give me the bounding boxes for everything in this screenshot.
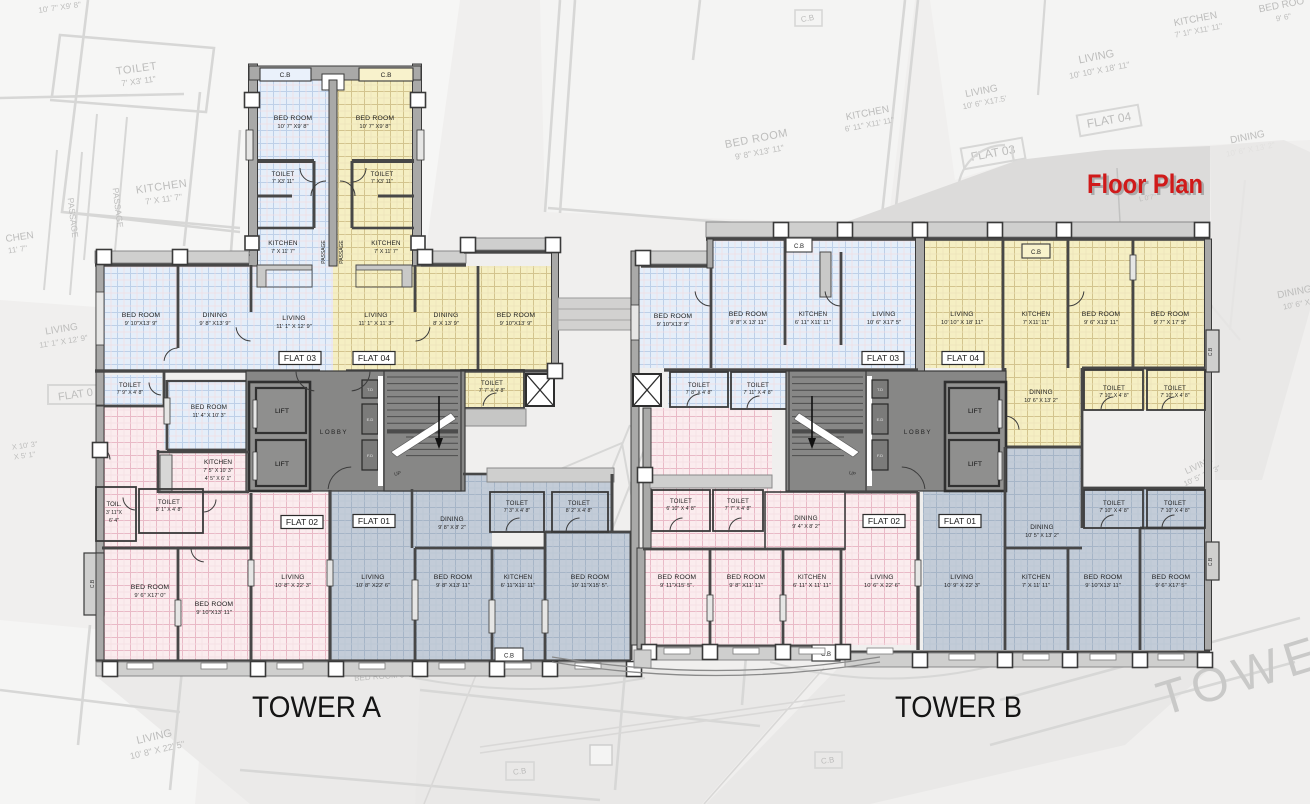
svg-text:BED ROOM: BED ROOM (1152, 574, 1191, 581)
svg-text:TOILET: TOILET (481, 381, 503, 387)
svg-text:F.D: F.D (367, 453, 373, 458)
svg-text:KITCHEN: KITCHEN (504, 574, 533, 581)
svg-text:7' 11" X 4' 8": 7' 11" X 4' 8" (744, 390, 773, 396)
svg-text:7' 7" X 4' 8": 7' 7" X 4' 8" (479, 388, 506, 394)
svg-text:7' 9" X 4' 8": 7' 9" X 4' 8" (117, 390, 144, 396)
svg-text:LOBBY: LOBBY (320, 429, 348, 436)
svg-text:LIVING: LIVING (872, 311, 896, 318)
svg-text:9' 10"X13' 9": 9' 10"X13' 9" (657, 322, 690, 328)
svg-text:7' X3' 11": 7' X3' 11" (272, 179, 294, 185)
svg-text:LIVING: LIVING (870, 574, 894, 581)
svg-text:C.B: C.B (512, 766, 526, 777)
svg-text:DINING: DINING (1030, 524, 1054, 531)
svg-text:9' 10"X13' 9": 9' 10"X13' 9" (125, 321, 158, 327)
svg-text:BED ROOM: BED ROOM (131, 584, 170, 591)
svg-text:6' 4": 6' 4" (109, 518, 119, 524)
svg-text:FLAT 04: FLAT 04 (947, 353, 979, 363)
svg-text:PASSAGE: PASSAGE (339, 240, 345, 264)
svg-text:7' 3" X 4' 8": 7' 3" X 4' 8" (504, 508, 531, 514)
svg-text:10' 9" X 22' 3": 10' 9" X 22' 3" (944, 583, 980, 589)
svg-text:TOILET: TOILET (119, 383, 141, 389)
svg-text:LIVING: LIVING (281, 574, 305, 581)
svg-text:T.D: T.D (877, 387, 883, 392)
svg-text:9' 10"X13' 11": 9' 10"X13' 11" (196, 610, 232, 616)
svg-text:C.B: C.B (1208, 557, 1214, 566)
svg-text:C.B: C.B (820, 755, 834, 766)
svg-text:BED ROOM: BED ROOM (1084, 574, 1123, 581)
svg-text:7' 10" X 4' 8": 7' 10" X 4' 8" (1160, 393, 1189, 399)
svg-text:10' 5" X 13' 2": 10' 5" X 13' 2" (1025, 533, 1059, 539)
svg-text:BED ROOM: BED ROOM (497, 312, 536, 319)
svg-text:KITCHEN: KITCHEN (798, 574, 827, 581)
svg-text:10' 10" X 18' 11": 10' 10" X 18' 11" (941, 320, 983, 326)
svg-text:7' X 11' 7": 7' X 11' 7" (271, 249, 295, 255)
svg-text:6' 11" X11' 11": 6' 11" X11' 11" (795, 320, 831, 326)
svg-text:TOIL.: TOIL. (107, 502, 122, 508)
svg-text:BED ROOM: BED ROOM (1151, 311, 1190, 318)
svg-text:11' 1" X 12' 9": 11' 1" X 12' 9" (276, 324, 312, 330)
svg-text:8' 1" X 4' 8": 8' 1" X 4' 8" (156, 507, 183, 513)
svg-text:BED ROOM: BED ROOM (434, 574, 473, 581)
svg-text:3' 11"X: 3' 11"X (106, 510, 123, 516)
svg-text:LIFT: LIFT (275, 461, 289, 468)
svg-text:C.B: C.B (504, 654, 514, 660)
svg-text:8' X 13' 9": 8' X 13' 9" (433, 321, 459, 327)
svg-text:TOILET: TOILET (688, 383, 710, 389)
svg-text:9' 11"X15' 5".: 9' 11"X15' 5". (660, 583, 694, 589)
svg-text:E.D: E.D (877, 417, 884, 422)
svg-text:9' 6" X13' 11": 9' 6" X13' 11" (1084, 320, 1118, 326)
svg-text:11' 1" X 11' 3": 11' 1" X 11' 3" (358, 321, 393, 327)
svg-text:KITCHEN: KITCHEN (799, 311, 828, 318)
svg-text:10' 11"X15' 5".: 10' 11"X15' 5". (571, 583, 609, 589)
svg-text:TOILET: TOILET (1164, 501, 1186, 507)
svg-text:11' 4" X 10' 3": 11' 4" X 10' 3" (192, 413, 225, 419)
svg-text:9' 6" X17' 0": 9' 6" X17' 0" (134, 593, 165, 599)
svg-text:C.B: C.B (1031, 250, 1041, 256)
svg-text:9' 10"X13' 9": 9' 10"X13' 9" (500, 321, 533, 327)
svg-text:9' 8" X 13' 11": 9' 8" X 13' 11" (730, 320, 766, 326)
svg-text:BED ROOM: BED ROOM (727, 574, 766, 581)
svg-text:7' 10" X 4' 8": 7' 10" X 4' 8" (1160, 508, 1189, 514)
svg-text:10' 6" X17' 5": 10' 6" X17' 5" (867, 320, 901, 326)
svg-text:BED ROOM: BED ROOM (274, 115, 313, 122)
svg-text:LIFT: LIFT (275, 408, 289, 415)
svg-text:10' 6" X 22' 6": 10' 6" X 22' 6" (864, 583, 900, 589)
svg-text:FLAT 03: FLAT 03 (867, 353, 899, 363)
svg-text:LIVING: LIVING (282, 315, 306, 322)
svg-text:PASSAGE: PASSAGE (321, 240, 327, 264)
svg-text:6' 10" X 4' 8": 6' 10" X 4' 8" (666, 506, 695, 512)
svg-text:DINING: DINING (203, 312, 228, 319)
svg-text:LIFT: LIFT (968, 408, 982, 415)
svg-text:6' 11" X 11' 11": 6' 11" X 11' 11" (793, 583, 831, 589)
svg-text:LIVING: LIVING (364, 312, 388, 319)
svg-text:BED ROOM: BED ROOM (658, 574, 697, 581)
svg-text:TOWER A: TOWER A (252, 691, 381, 724)
svg-text:KITCHEN: KITCHEN (1022, 574, 1051, 581)
svg-text:TOILET: TOILET (670, 499, 692, 505)
svg-text:TOILET: TOILET (568, 501, 590, 507)
svg-text:BED ROOM: BED ROOM (571, 574, 610, 581)
svg-text:TOILET: TOILET (158, 500, 180, 506)
svg-text:DINING: DINING (1029, 389, 1053, 396)
svg-text:FLAT 01: FLAT 01 (944, 516, 976, 526)
svg-text:9' 8" X13' 9": 9' 8" X13' 9" (199, 321, 230, 327)
svg-text:10' 7" X9' 8": 10' 7" X9' 8" (277, 124, 308, 130)
svg-text:7' X11' 11": 7' X11' 11" (1023, 320, 1050, 326)
svg-text:LIFT: LIFT (968, 461, 982, 468)
svg-text:TOILET: TOILET (727, 499, 749, 505)
svg-text:KITCHEN: KITCHEN (268, 240, 298, 247)
svg-text:8' 2" X 4' 8": 8' 2" X 4' 8" (566, 508, 593, 514)
svg-text:TOILET: TOILET (371, 171, 394, 178)
svg-text:6' 11"X11' 11": 6' 11"X11' 11" (501, 583, 536, 589)
svg-text:FLAT 02: FLAT 02 (868, 516, 900, 526)
svg-text:9' 6" X17' 5": 9' 6" X17' 5" (1155, 583, 1186, 589)
svg-text:BED ROOM: BED ROOM (195, 601, 234, 608)
svg-text:BED ROOM: BED ROOM (191, 404, 227, 411)
svg-text:C.B: C.B (1208, 347, 1214, 356)
svg-text:9' 8" X11' 11": 9' 8" X11' 11" (729, 583, 763, 589)
svg-text:9' 10"X13' 11": 9' 10"X13' 11" (1085, 583, 1121, 589)
svg-text:9' 4" X 8' 2": 9' 4" X 8' 2" (792, 524, 820, 530)
svg-text:7' 10" X 4' 8": 7' 10" X 4' 8" (1099, 508, 1128, 514)
svg-text:7' X3' 11": 7' X3' 11" (371, 179, 393, 185)
svg-text:DINING: DINING (794, 515, 818, 522)
svg-text:7' 10" X 4' 8": 7' 10" X 4' 8" (1099, 393, 1128, 399)
svg-text:LIVING: LIVING (950, 311, 974, 318)
svg-text:T.D: T.D (367, 387, 373, 392)
svg-text:4' 5" X 6' 1": 4' 5" X 6' 1" (205, 476, 232, 482)
svg-text:7' 8" X 4' 8": 7' 8" X 4' 8" (686, 390, 713, 396)
svg-text:7' 7" X 4' 8": 7' 7" X 4' 8" (725, 506, 752, 512)
svg-text:10' 8" X 22' 3": 10' 8" X 22' 3" (275, 583, 311, 589)
svg-text:9' 8" X13' 11": 9' 8" X13' 11" (436, 583, 470, 589)
svg-text:9' 8" X 8' 2": 9' 8" X 8' 2" (438, 525, 466, 531)
svg-text:7' X 11' 7": 7' X 11' 7" (374, 249, 398, 255)
svg-text:TOILET: TOILET (1103, 501, 1125, 507)
svg-text:TOILET: TOILET (747, 383, 769, 389)
svg-text:F.D: F.D (877, 453, 883, 458)
svg-text:FLAT 03: FLAT 03 (284, 353, 316, 363)
svg-text:10' 8" X22' 6": 10' 8" X22' 6" (356, 583, 390, 589)
svg-text:BED ROOM: BED ROOM (1082, 311, 1121, 318)
svg-text:10' 7" X9' 8": 10' 7" X9' 8" (359, 124, 390, 130)
svg-text:E.D: E.D (367, 417, 374, 422)
svg-text:FLAT 01: FLAT 01 (358, 516, 390, 526)
svg-text:C.B: C.B (90, 579, 96, 588)
svg-text:DINING: DINING (440, 516, 464, 523)
svg-text:BED ROOM: BED ROOM (356, 115, 395, 122)
svg-text:TOILET: TOILET (1164, 386, 1186, 392)
svg-text:10' 6" X 13' 2": 10' 6" X 13' 2" (1024, 398, 1058, 404)
svg-text:7' 5" X 10' 3": 7' 5" X 10' 3" (203, 468, 232, 474)
svg-text:Floor Plan: Floor Plan (1087, 169, 1203, 199)
svg-text:7' X 11' 11": 7' X 11' 11" (1022, 583, 1050, 589)
svg-text:C.B: C.B (280, 72, 291, 79)
svg-text:KITCHEN: KITCHEN (1022, 311, 1051, 318)
svg-text:FLAT 04: FLAT 04 (358, 353, 390, 363)
svg-text:FLAT 02: FLAT 02 (286, 517, 318, 527)
svg-text:TOILET: TOILET (506, 501, 528, 507)
svg-text:C.B: C.B (794, 244, 804, 250)
svg-text:BED ROOM: BED ROOM (654, 313, 693, 320)
svg-text:9' 7" X 17' 5": 9' 7" X 17' 5" (1154, 320, 1187, 326)
svg-text:BED ROOM: BED ROOM (729, 311, 768, 318)
svg-text:LIVING: LIVING (950, 574, 974, 581)
svg-text:TOILET: TOILET (272, 171, 295, 178)
svg-text:TOILET: TOILET (1103, 386, 1125, 392)
svg-text:KITCHEN: KITCHEN (204, 459, 232, 466)
svg-text:BED ROOM: BED ROOM (122, 312, 161, 319)
svg-text:C.B: C.B (381, 72, 392, 79)
svg-text:LOBBY: LOBBY (904, 429, 932, 436)
svg-text:DINING: DINING (434, 312, 459, 319)
svg-text:TOWER B: TOWER B (895, 691, 1022, 724)
svg-text:LIVING: LIVING (361, 574, 385, 581)
svg-text:KITCHEN: KITCHEN (371, 240, 401, 247)
